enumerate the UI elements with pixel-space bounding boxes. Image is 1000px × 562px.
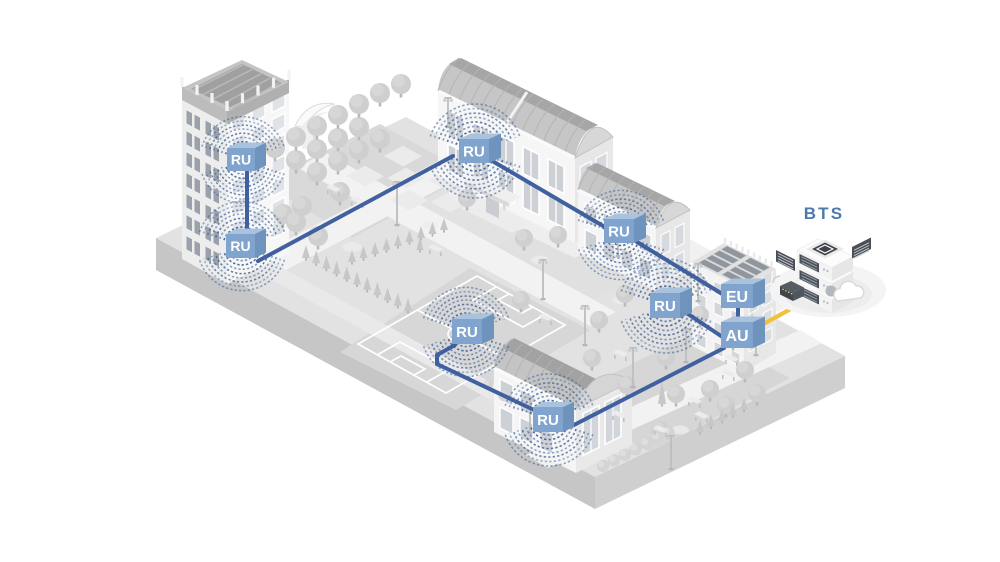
svg-text:AU: AU [725, 328, 748, 345]
svg-text:EU: EU [726, 289, 748, 306]
svg-text:RU: RU [456, 324, 478, 341]
svg-text:RU: RU [537, 412, 559, 429]
svg-text:RU: RU [654, 298, 676, 315]
svg-text:RU: RU [231, 152, 251, 168]
svg-text:RU: RU [608, 223, 630, 240]
svg-text:RU: RU [463, 143, 485, 160]
svg-text:RU: RU [230, 238, 250, 254]
svg-text:BTS: BTS [804, 204, 845, 223]
